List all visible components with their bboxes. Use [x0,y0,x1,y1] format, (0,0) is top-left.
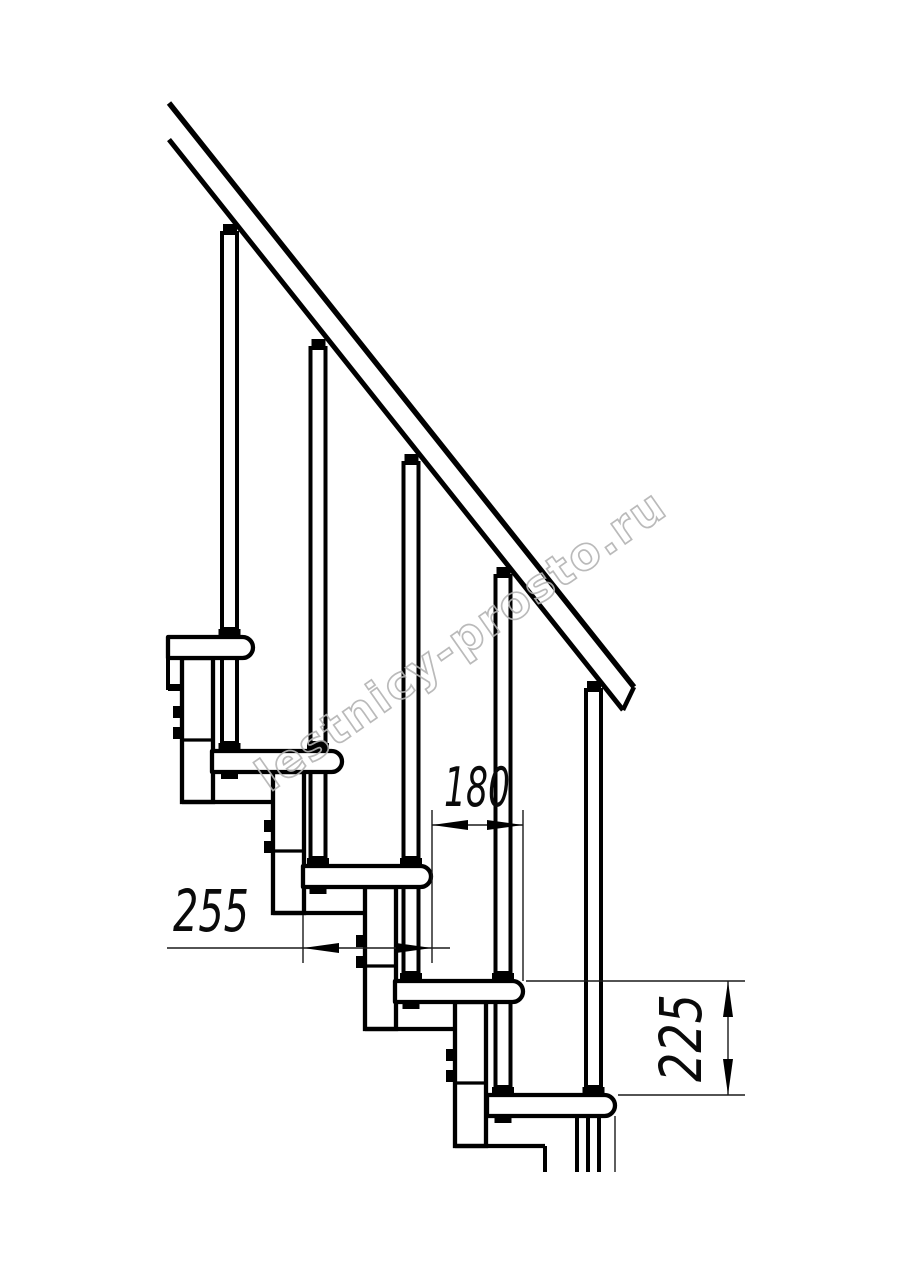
baluster-4 [496,576,511,1087]
staircase-technical-drawing: 180 255 225 [0,0,914,1280]
mount-block [492,973,514,981]
tread-1 [168,637,253,658]
rail-cap [312,339,326,349]
arrow-down-icon [723,1059,733,1095]
nut-icon [221,772,238,779]
baluster-3 [404,463,419,973]
rail-cap [497,567,511,577]
tread-5 [487,1095,615,1116]
mount-block [583,1087,605,1095]
mount-block [400,973,422,981]
dimension-225: 225 [526,981,745,1172]
dimension-label-180: 180 [444,756,510,819]
bolt-icon [264,841,273,853]
mount-block [307,858,329,866]
bolt-icon [264,820,273,832]
arrow-left-icon [432,820,468,830]
baluster-2 [311,348,326,858]
rail-cap [223,224,237,234]
tread-4 [395,981,523,1002]
mount-block [400,858,422,866]
mount-block [219,743,241,751]
bolt-icon [173,706,182,718]
nut-icon [310,887,327,894]
baluster-1 [222,233,237,743]
support-module-5 [545,1116,577,1172]
arrow-left-icon [303,943,339,953]
mount-block [492,1087,514,1095]
mount-block [219,629,241,637]
bolt-icon [356,935,365,947]
rail-cap [587,681,601,691]
dimension-label-225: 225 [647,994,715,1082]
tread-3 [303,866,431,887]
nut-icon [495,1116,512,1123]
bolt-icon [446,1070,455,1082]
rail-cap [405,454,419,464]
tread-2 [212,751,342,772]
arrow-up-icon [723,981,733,1017]
mount-block [307,743,329,751]
bolt-icon [356,956,365,968]
nut-icon [403,1002,420,1009]
bolt-icon [173,727,182,739]
dimension-label-255: 255 [173,877,249,945]
bolt-icon [446,1049,455,1061]
